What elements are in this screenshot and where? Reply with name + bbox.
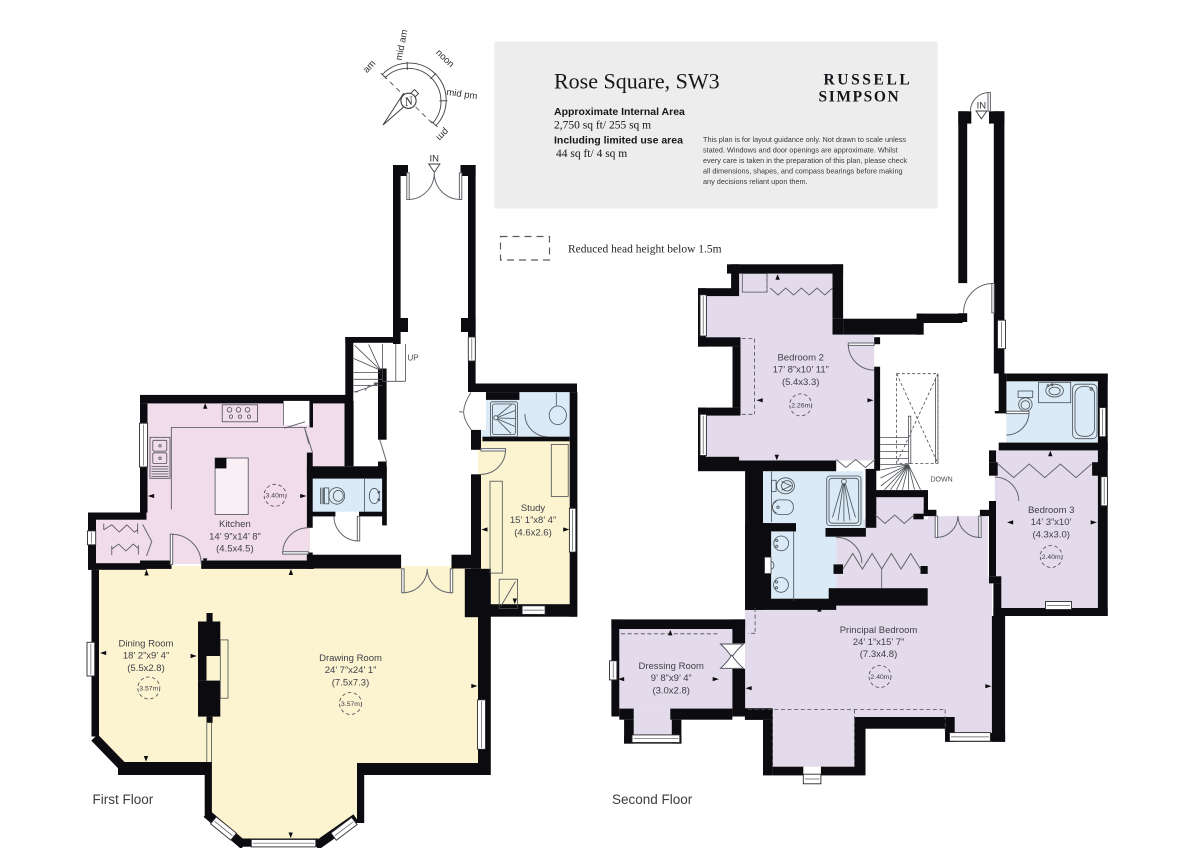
svg-text:RUSSELL: RUSSELL	[824, 72, 913, 89]
svg-text:stated. Windows and door openi: stated. Windows and door openings are ap…	[703, 146, 898, 155]
svg-text:2,750 sq ft/ 255 sq m: 2,750 sq ft/ 255 sq m	[554, 120, 651, 132]
svg-text:17’ 8”x10’ 11”: 17’ 8”x10’ 11”	[773, 365, 829, 376]
svg-text:This plan is for layout guidan: This plan is for layout guidance only. N…	[703, 135, 906, 144]
svg-text:14’ 3”x10’: 14’ 3”x10’	[1031, 517, 1072, 528]
svg-text:Principal Bedroom: Principal Bedroom	[840, 625, 918, 636]
svg-text:any decisions reliant upon the: any decisions reliant upon them.	[703, 177, 808, 186]
svg-text:First Floor: First Floor	[93, 792, 154, 807]
svg-text:Bedroom 3: Bedroom 3	[1028, 505, 1074, 516]
svg-text:Dressing Room: Dressing Room	[638, 661, 704, 672]
svg-text:2.40m: 2.40m	[1042, 554, 1061, 561]
svg-text:3.57m: 3.57m	[341, 701, 360, 708]
svg-text:(7.5x7.3): (7.5x7.3)	[332, 677, 370, 688]
svg-text:Approximate Internal Area: Approximate Internal Area	[554, 106, 685, 118]
svg-text:every care is taken in the pre: every care is taken in the preparation o…	[703, 156, 907, 165]
svg-text:Rose Square, SW3: Rose Square, SW3	[554, 69, 720, 94]
svg-text:44 sq ft/ 4 sq m: 44 sq ft/ 4 sq m	[556, 148, 627, 160]
svg-text:Reduced head height below 1.5m: Reduced head height below 1.5m	[568, 244, 722, 256]
svg-text:Kitchen: Kitchen	[219, 519, 251, 530]
svg-text:2.40m: 2.40m	[871, 674, 890, 681]
svg-text:3.57m: 3.57m	[139, 685, 158, 692]
svg-text:(5.5x2.8): (5.5x2.8)	[127, 663, 165, 674]
svg-text:3.40m: 3.40m	[266, 493, 285, 500]
svg-text:Including limited use area: Including limited use area	[554, 135, 683, 147]
svg-text:24’ 7”x24’ 1”: 24’ 7”x24’ 1”	[325, 665, 377, 676]
svg-text:2.26m: 2.26m	[791, 402, 810, 409]
svg-text:all dimensions, shapes, and co: all dimensions, shapes, and compass bear…	[703, 167, 903, 176]
svg-text:SIMPSON: SIMPSON	[819, 89, 901, 106]
svg-text:(7.3x4.8): (7.3x4.8)	[860, 649, 898, 660]
svg-text:15’ 1”x8’ 4”: 15’ 1”x8’ 4”	[510, 515, 556, 526]
svg-text:UP: UP	[408, 354, 419, 363]
svg-text:IN: IN	[430, 154, 440, 165]
svg-text:24’ 1”x15’ 7”: 24’ 1”x15’ 7”	[853, 637, 905, 648]
svg-text:(4.5x4.5): (4.5x4.5)	[216, 544, 254, 555]
svg-text:(4.3x3.0): (4.3x3.0)	[1032, 529, 1070, 540]
svg-text:Study: Study	[521, 503, 546, 514]
svg-text:Drawing Room: Drawing Room	[319, 653, 382, 664]
svg-text:Dining Room: Dining Room	[119, 639, 174, 650]
svg-text:(5.4x3.3): (5.4x3.3)	[782, 377, 820, 388]
svg-text:IN: IN	[977, 101, 987, 112]
svg-text:Second Floor: Second Floor	[612, 792, 693, 807]
svg-text:18’ 2”x9’ 4”: 18’ 2”x9’ 4”	[123, 651, 169, 662]
svg-text:(3.0x2.8): (3.0x2.8)	[652, 685, 690, 696]
svg-text:9’ 8”x9’ 4”: 9’ 8”x9’ 4”	[651, 673, 692, 684]
svg-text:Bedroom 2: Bedroom 2	[777, 353, 823, 364]
svg-text:14’ 9”x14’ 8”: 14’ 9”x14’ 8”	[209, 531, 261, 542]
svg-text:(4.6x2.6): (4.6x2.6)	[514, 527, 552, 538]
svg-text:DOWN: DOWN	[931, 477, 953, 484]
